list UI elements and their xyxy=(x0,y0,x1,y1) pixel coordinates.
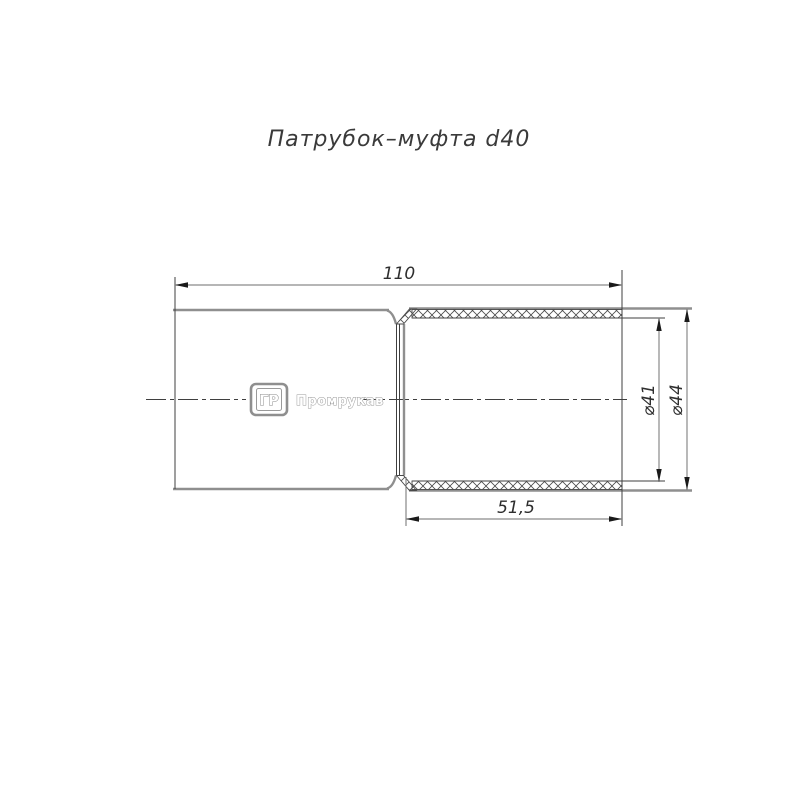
technical-drawing-page: Патрубок–муфта d40 xyxy=(0,0,800,800)
manufacturer-logo: ГР Промрукав xyxy=(246,381,384,418)
drawing-title: Патрубок–муфта d40 xyxy=(268,127,531,152)
dimension-total-length: 110 xyxy=(175,264,622,288)
dimension-inner-diameter: ⌀41 xyxy=(639,318,662,482)
dim-outer-diameter-value: ⌀44 xyxy=(667,384,687,416)
dim-socket-length-value: 51,5 xyxy=(497,498,535,518)
neck-groove-top xyxy=(387,311,396,325)
dimension-outer-diameter: ⌀44 xyxy=(667,309,690,490)
brand-name: Промрукав xyxy=(296,394,384,409)
logo-monogram: ГР xyxy=(259,393,278,409)
neck-groove-bottom xyxy=(387,476,396,489)
dim-inner-diameter-value: ⌀41 xyxy=(639,384,659,416)
pipe-coupling-drawing: Патрубок–муфта d40 xyxy=(0,0,800,800)
knurl-band-top xyxy=(412,310,622,319)
dim-total-length-value: 110 xyxy=(383,264,415,284)
knurl-band-bottom xyxy=(412,481,622,490)
